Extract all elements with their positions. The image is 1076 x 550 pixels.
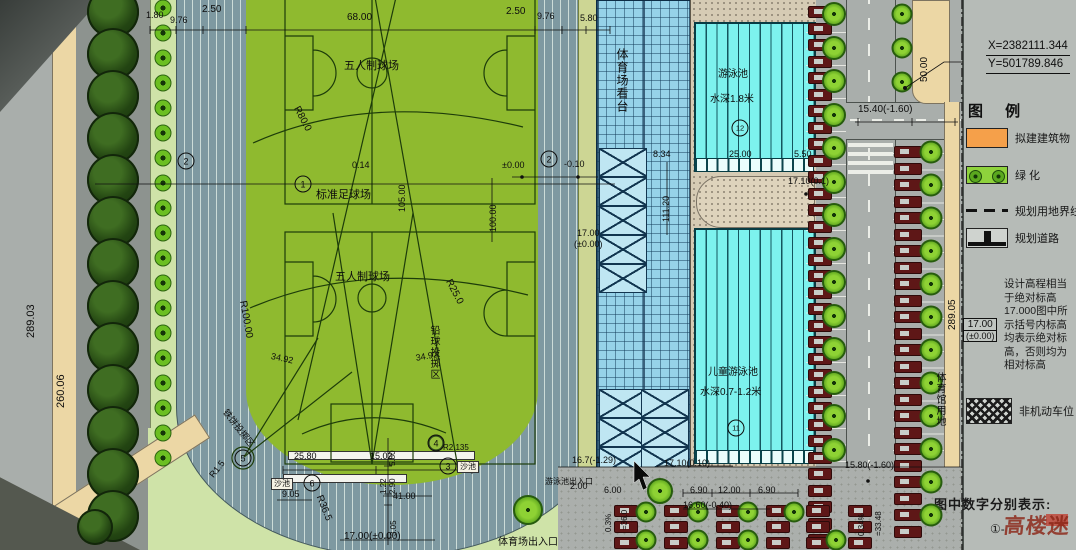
annotation-label: 5.80 [580, 14, 598, 23]
annotation-label: 8.34 [653, 150, 671, 159]
annotation-label: R2.135 [443, 444, 469, 452]
elevation-note-line: 高，否则均为 [1004, 346, 1068, 360]
legend-item-label: 规划用地界线 [1015, 203, 1076, 219]
car-icon [894, 427, 922, 439]
circled-number: 2 [178, 153, 195, 170]
shrub-icon [155, 400, 172, 417]
shrub-icon [155, 50, 172, 67]
elevation-note-line: 设计高程相当 [1004, 278, 1068, 292]
circled-number: 5 [235, 450, 252, 467]
tree-icon [920, 471, 943, 494]
annotation-label: 260.06 [56, 374, 67, 408]
tree-icon [738, 502, 759, 523]
annotation-label: =33.48 [875, 511, 883, 536]
car-icon [716, 521, 740, 533]
circled-number: 11 [728, 420, 745, 437]
tree-icon [822, 304, 846, 328]
tree-icon [920, 438, 943, 461]
annotation-label: 5.80 [389, 450, 397, 466]
annotation-label: 17.10(0.10) [664, 459, 710, 468]
shrub-icon [155, 425, 172, 442]
annotation-label: 0.14 [352, 161, 370, 170]
survey-coordinates: X=2382111.344 Y=501789.846 [986, 38, 1070, 74]
car-icon [848, 537, 872, 549]
swimming-pool-50m [694, 22, 816, 162]
elevation-symbol-top: 17.00 [964, 319, 996, 331]
annotation-label: 1.22 [380, 478, 388, 494]
circled-number: 12 [732, 120, 749, 137]
tree-icon [822, 438, 846, 462]
shrub-icon [155, 200, 172, 217]
tree-icon [636, 502, 657, 523]
site-plan: X=2382111.344 Y=501789.846 图 例 设计高程相当于绝对… [0, 0, 1076, 550]
annotation-label: 25.80 [294, 452, 317, 461]
car-icon [894, 196, 922, 208]
tree-icon [738, 530, 759, 550]
elevation-symbol: 17.00 (±0.00) [963, 318, 997, 342]
car-icon [894, 410, 922, 422]
stand-bay [599, 389, 647, 418]
car-icon [894, 394, 922, 406]
shrub-icon [155, 75, 172, 92]
annotation-label: 41.00 [393, 492, 416, 501]
legend-item-greenery: 绿 化 [966, 166, 1040, 184]
shrub-icon [155, 25, 172, 42]
legend-item-planned-road: 规划道路 [966, 228, 1059, 248]
car-icon [894, 163, 922, 175]
tree-icon [822, 103, 846, 127]
annotation-label: 6.90 [758, 486, 776, 495]
annotation-label: 体育场出入口 [498, 538, 558, 548]
circled-number: 3 [440, 458, 457, 475]
shrub-icon [155, 450, 172, 467]
tree-icon [688, 530, 709, 550]
car-icon [894, 509, 922, 521]
legend-item-label: 拟建建筑物 [1015, 130, 1070, 146]
tree-icon [892, 4, 913, 25]
car-icon [894, 229, 922, 241]
starting-blocks-top [694, 158, 814, 172]
annotation-label: 儿童游泳池 [708, 368, 758, 378]
car-icon [808, 468, 832, 480]
annotation-label: 标准足球场 [316, 190, 371, 201]
annotation-label: (±0.00) [574, 240, 602, 249]
tree-icon [822, 371, 846, 395]
car-icon [894, 295, 922, 307]
tree-icon [822, 2, 846, 26]
annotation-label: 体育场看台 [616, 48, 628, 113]
car-icon [894, 344, 922, 356]
car-icon [894, 377, 922, 389]
tree-icon [636, 530, 657, 550]
car-icon [894, 476, 922, 488]
annotation-label: 289.05 [948, 299, 958, 330]
annotation-label: 9.76 [537, 12, 555, 21]
annotation-label: 五人制球场 [344, 61, 399, 72]
annotation-label: =36.0 [621, 510, 629, 530]
annotation-label: 铅球投掷区 [428, 325, 438, 380]
shrub-icon [155, 325, 172, 342]
legend-item-nonmotor: 非机动车位 [966, 398, 1074, 424]
car-icon [894, 361, 922, 373]
annotation-label: 2.00 [570, 482, 588, 491]
proposed-building-swatch [966, 128, 1008, 148]
annotation-label: 0.3% [605, 514, 613, 532]
car-icon [894, 526, 922, 538]
car-icon [894, 212, 922, 224]
stand-bay [599, 235, 647, 264]
shrub-icon [155, 375, 172, 392]
planned-road-swatch [966, 228, 1008, 248]
annotation-label: 50.00 [920, 57, 930, 82]
sidewalk-strip-west [52, 0, 78, 550]
elevation-note: 设计高程相当于绝对标高17.000图中所示括号内标高均表示绝对标高，否则均为相对… [1004, 278, 1068, 373]
elevation-note-line: 17.000图中所 [1004, 305, 1068, 319]
car-icon [806, 505, 830, 517]
annotation-label: 111.20 [662, 196, 671, 222]
annotation-label: 68.00 [347, 13, 372, 23]
car-icon [766, 537, 790, 549]
tree-icon [920, 207, 943, 230]
coordinate-x: X=2382111.344 [986, 38, 1070, 56]
annotation-label: 体育馆用地 [934, 372, 944, 427]
tree-icon [822, 337, 846, 361]
circled-number: 1 [295, 176, 312, 193]
tree-icon [892, 38, 913, 59]
tree-icon [822, 404, 846, 428]
tree-icon [822, 136, 846, 160]
annotation-label: 25.00 [729, 150, 752, 159]
shrub-icon [155, 300, 172, 317]
annotation-label: 17.10(0.1) [788, 177, 829, 186]
car-icon [894, 328, 922, 340]
stand-bay [641, 418, 689, 447]
annotation-label: 2.50 [202, 5, 221, 15]
annotation-label: 12.00 [718, 486, 741, 495]
annotation-label: 9.76 [170, 16, 188, 25]
annotation-label: 15.80(-1.60) [845, 461, 894, 470]
car-icon [716, 537, 740, 549]
tree-icon [822, 270, 846, 294]
annotation-label: 17.00 [577, 229, 600, 238]
shrub-icon [155, 350, 172, 367]
legend-title: 图 例 [968, 100, 1029, 121]
football-field [246, 0, 538, 485]
car-icon [894, 493, 922, 505]
annotation-label: 6.90 [690, 486, 708, 495]
annotation-label: -0.10 [564, 160, 585, 169]
children-pool [694, 228, 816, 454]
annotation-label: 105.00 [398, 184, 407, 212]
tree-icon [513, 495, 543, 525]
car-icon [664, 521, 688, 533]
nonmotor-parking-swatch [966, 398, 1012, 424]
stand-bay [641, 389, 689, 418]
annotation-label: 289.03 [26, 304, 37, 338]
stand-bay [599, 264, 647, 293]
tree-icon [77, 509, 113, 545]
elevation-note-line: 示括号内标高 [1004, 319, 1068, 333]
tree-icon [892, 72, 913, 93]
car-icon [894, 146, 922, 158]
tree-icon [826, 530, 847, 550]
elevation-note-line: 于绝对标高 [1004, 292, 1068, 306]
car-icon [894, 179, 922, 191]
tree-icon [784, 502, 805, 523]
annotation-label: 1.80 [146, 11, 164, 20]
tree-icon [920, 174, 943, 197]
watermark: 高楼迷 [1002, 510, 1071, 540]
annotation-label: 水深1.8米 [710, 95, 754, 105]
car-icon [766, 521, 790, 533]
shrub-icon [155, 225, 172, 242]
tree-icon [920, 240, 943, 263]
elevation-note-line: 相对标高 [1004, 359, 1068, 373]
annotation-label: 2.50 [506, 7, 525, 17]
tree-icon [822, 203, 846, 227]
sidewalk-strip-top-right [912, 0, 950, 104]
tree-icon [920, 306, 943, 329]
tree-icon [920, 339, 943, 362]
annotation-label: ±0.00 [502, 161, 524, 170]
car-icon [894, 262, 922, 274]
annotation-label: 100.00 [489, 204, 498, 232]
crosswalk [848, 140, 893, 174]
car-icon [664, 537, 688, 549]
starting-blocks-bottom [694, 450, 814, 464]
shrub-icon [155, 250, 172, 267]
annotation-label: 沙池 [457, 461, 479, 473]
annotation-label: 水深0.7-1.2米 [700, 388, 761, 398]
tree-icon [647, 478, 673, 504]
shrub-icon [155, 275, 172, 292]
land-boundary-swatch [966, 209, 1008, 212]
annotation-label: 9.05 [282, 490, 300, 499]
circled-number: 2 [541, 151, 558, 168]
annotation-label: 16.60(-0.40) [683, 501, 732, 510]
coordinate-y: Y=501789.846 [986, 56, 1070, 74]
tree-icon [822, 36, 846, 60]
shrub-icon [155, 175, 172, 192]
car-icon [894, 245, 922, 257]
circled-number: 4 [428, 435, 445, 452]
legend-item-land-boundary: 规划用地界线 [966, 200, 1076, 221]
stand-bay [599, 177, 647, 206]
annotation-label: 沙池 [271, 478, 293, 490]
legend-item-proposed-building: 拟建建筑物 [966, 128, 1070, 148]
annotation-label: 6.00 [604, 486, 622, 495]
elevation-note-line: 均表示绝对标 [1004, 332, 1068, 346]
elevation-symbol-bottom: (±0.00) [964, 331, 996, 341]
car-icon [894, 460, 922, 472]
legend-item-label: 绿 化 [1015, 167, 1040, 183]
car-icon [806, 521, 830, 533]
shrub-icon [155, 150, 172, 167]
annotation-label: 游泳池 [718, 70, 748, 80]
tree-icon [920, 504, 943, 527]
car-icon [894, 278, 922, 290]
annotation-label: 16.7(-1.29) [572, 456, 616, 465]
annotation-label: 五人制球场 [335, 272, 390, 283]
car-icon [614, 537, 638, 549]
grandstand [596, 0, 692, 469]
car-icon [894, 443, 922, 455]
legend-panel [962, 0, 1076, 550]
circled-number: 6 [304, 475, 321, 492]
shrub-icon [155, 125, 172, 142]
shrub-icon [155, 100, 172, 117]
stand-bay [599, 206, 647, 235]
legend-item-label: 规划道路 [1015, 230, 1059, 246]
annotation-label: 5.50 [794, 150, 812, 159]
tree-icon [920, 273, 943, 296]
car-icon [808, 485, 832, 497]
legend-item-label: 非机动车位 [1019, 403, 1074, 419]
car-icon [894, 311, 922, 323]
stand-bay [599, 148, 647, 177]
annotation-label: 0.34% [858, 513, 866, 536]
tree-icon [822, 69, 846, 93]
annotation-label: 15.40(-1.60) [858, 105, 912, 115]
greenery-swatch [966, 166, 1008, 184]
tree-icon [920, 141, 943, 164]
annotation-label: 17.00(±0.00) [344, 532, 401, 542]
tree-icon [822, 237, 846, 261]
stand-bay [599, 418, 647, 447]
